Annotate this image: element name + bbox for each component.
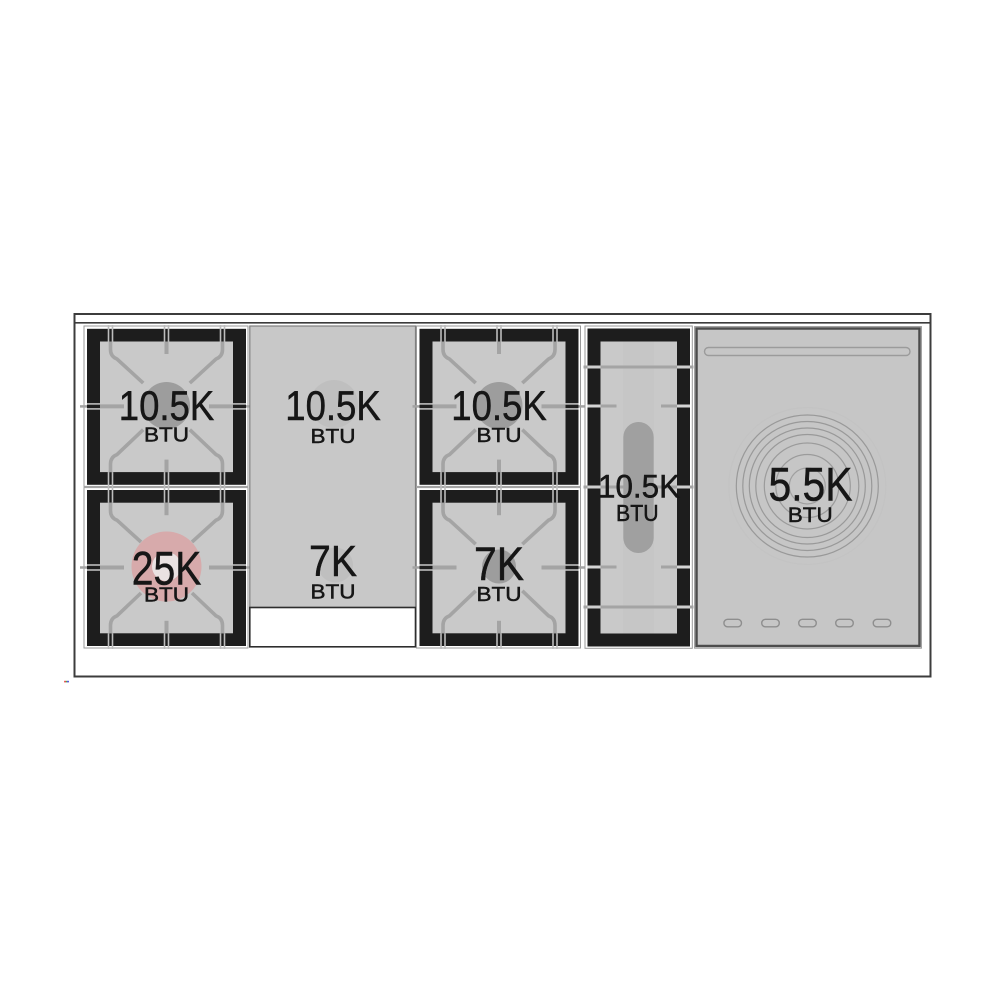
svg-text:10.5K: 10.5K bbox=[451, 382, 547, 429]
svg-text:BTU: BTU bbox=[477, 425, 522, 447]
svg-text:BTU: BTU bbox=[616, 500, 659, 526]
svg-text:BTU: BTU bbox=[144, 425, 189, 447]
svg-text:10.5K: 10.5K bbox=[285, 382, 381, 429]
svg-text:BTU: BTU bbox=[311, 426, 356, 448]
svg-text:7K: 7K bbox=[309, 537, 357, 586]
svg-text:BTU: BTU bbox=[144, 585, 189, 607]
svg-text:BTU: BTU bbox=[311, 582, 356, 604]
svg-text:10.5K: 10.5K bbox=[598, 468, 680, 504]
svg-text:10.5K: 10.5K bbox=[119, 382, 215, 429]
svg-text:BTU: BTU bbox=[477, 584, 522, 606]
svg-text:BTU: BTU bbox=[788, 503, 833, 527]
